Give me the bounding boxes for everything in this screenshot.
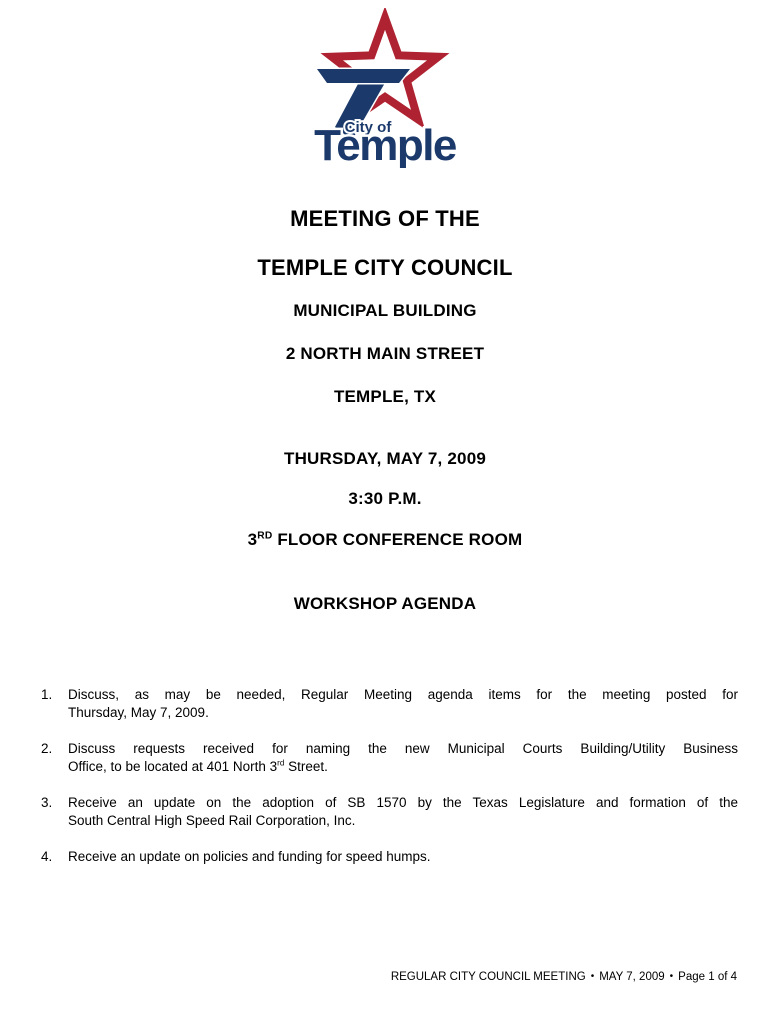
agenda-item-number: 4. <box>41 848 68 866</box>
agenda-item-1: 1. Discuss, as may be needed, Regular Me… <box>41 686 738 722</box>
agenda-item-line-part: Street. <box>284 759 328 774</box>
agenda-item-text: Receive an update on the adoption of SB … <box>68 794 738 830</box>
agenda-list: 1. Discuss, as may be needed, Regular Me… <box>41 686 738 884</box>
city-state-line: TEMPLE, TX <box>0 387 770 407</box>
footer-meeting-label: REGULAR CITY COUNCIL MEETING <box>391 971 586 983</box>
footer-bullet-icon: • <box>591 971 595 982</box>
street-line: 2 NORTH MAIN STREET <box>0 344 770 364</box>
room-ordinal: RD <box>257 530 272 541</box>
meeting-title-line2: TEMPLE CITY COUNCIL <box>0 255 770 281</box>
room-number: 3 <box>248 530 258 549</box>
building-line: MUNICIPAL BUILDING <box>0 301 770 321</box>
agenda-item-text: Discuss requests received for naming the… <box>68 740 738 776</box>
footer-bullet-icon: • <box>670 971 674 982</box>
agenda-item-text: Discuss, as may be needed, Regular Meeti… <box>68 686 738 722</box>
document-page: City of Temple MEETING OF THE TEMPLE CIT… <box>0 0 770 1024</box>
agenda-item-line: Receive an update on the adoption of SB … <box>68 794 738 812</box>
meeting-time-line: 3:30 P.M. <box>0 489 770 509</box>
agenda-item-line-part: Office, to be located at 401 North 3 <box>68 759 277 774</box>
footer-date: MAY 7, 2009 <box>599 971 664 983</box>
agenda-item-number: 1. <box>41 686 68 722</box>
agenda-item-4: 4. Receive an update on policies and fun… <box>41 848 738 866</box>
agenda-item-line: Thursday, May 7, 2009. <box>68 704 738 722</box>
logo-temple-text: Temple <box>314 121 456 168</box>
agenda-item-2: 2. Discuss requests received for naming … <box>41 740 738 776</box>
page-footer: REGULAR CITY COUNCIL MEETING•MAY 7, 2009… <box>391 971 737 983</box>
agenda-item-line: Discuss requests received for naming the… <box>68 740 738 758</box>
agenda-item-line: Discuss, as may be needed, Regular Meeti… <box>68 686 738 704</box>
workshop-agenda-title: WORKSHOP AGENDA <box>0 594 770 614</box>
meeting-title-line1: MEETING OF THE <box>0 206 770 232</box>
temple-star-icon: City of Temple <box>297 8 473 168</box>
agenda-item-number: 2. <box>41 740 68 776</box>
city-of-temple-logo: City of Temple <box>297 8 473 173</box>
footer-page-number: Page 1 of 4 <box>678 971 737 983</box>
agenda-item-line: South Central High Speed Rail Corporatio… <box>68 812 738 830</box>
meeting-room-line: 3RD FLOOR CONFERENCE ROOM <box>0 530 770 550</box>
agenda-item-line: Receive an update on policies and fundin… <box>68 848 738 866</box>
agenda-item-number: 3. <box>41 794 68 830</box>
meeting-date-line: THURSDAY, MAY 7, 2009 <box>0 449 770 469</box>
room-rest: FLOOR CONFERENCE ROOM <box>272 530 522 549</box>
agenda-item-line: Office, to be located at 401 North 3rd S… <box>68 758 738 776</box>
agenda-item-3: 3. Receive an update on the adoption of … <box>41 794 738 830</box>
t-crossbar-shape <box>317 69 410 83</box>
agenda-item-text: Receive an update on policies and fundin… <box>68 848 738 866</box>
